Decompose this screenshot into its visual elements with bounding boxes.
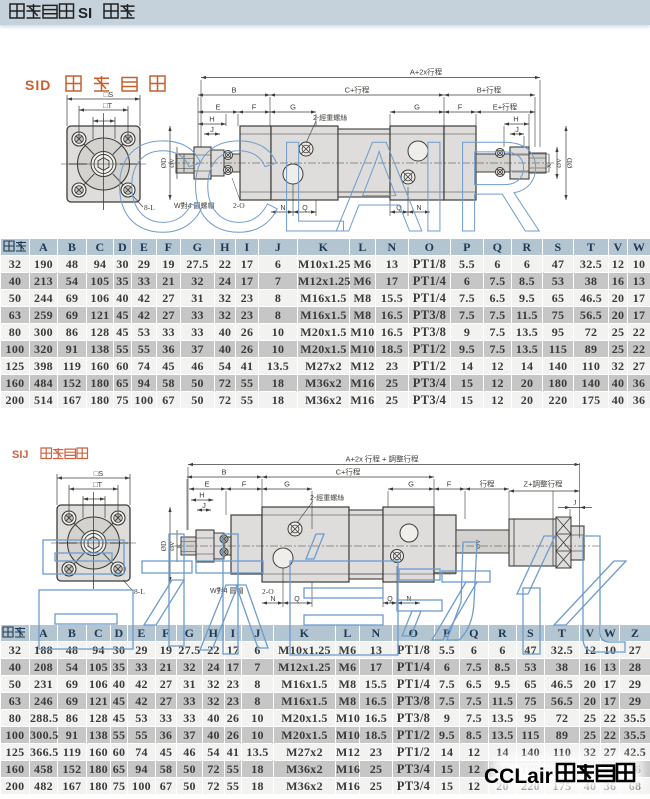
svg-text:ØV: ØV (475, 539, 482, 549)
svg-text:K: K (177, 543, 183, 548)
svg-text:2-經重螺絲: 2-經重螺絲 (310, 493, 344, 502)
svg-text:J: J (574, 498, 577, 507)
svg-text:2-O: 2-O (262, 587, 274, 596)
svg-text:ØD: ØD (160, 541, 168, 551)
svg-text:ØV: ØV (169, 541, 176, 551)
svg-text:Q: Q (294, 596, 300, 603)
svg-text:G: G (284, 480, 290, 489)
svg-text:E: E (204, 480, 209, 489)
svg-text:CCLair: CCLair (484, 765, 553, 788)
svg-text:H: H (199, 491, 204, 500)
svg-text:C+行程: C+行程 (336, 467, 361, 477)
svg-text:Z+調整行程: Z+調整行程 (524, 479, 563, 489)
svg-text:I: I (92, 490, 94, 499)
svg-text:□T: □T (93, 480, 103, 489)
svg-text:A+2x 行程 + 調整行程: A+2x 行程 + 調整行程 (346, 454, 419, 464)
svg-text:B: B (221, 468, 226, 477)
svg-text:J: J (202, 501, 206, 510)
svg-text:8-L: 8-L (134, 587, 145, 596)
svg-text:行程: 行程 (480, 479, 495, 489)
svg-text:G: G (408, 480, 414, 489)
svg-text:□S: □S (94, 469, 104, 478)
svg-text:Q: Q (387, 596, 393, 603)
svg-text:F: F (447, 480, 452, 489)
svg-text:F: F (242, 480, 247, 489)
svg-text:N: N (270, 596, 275, 603)
